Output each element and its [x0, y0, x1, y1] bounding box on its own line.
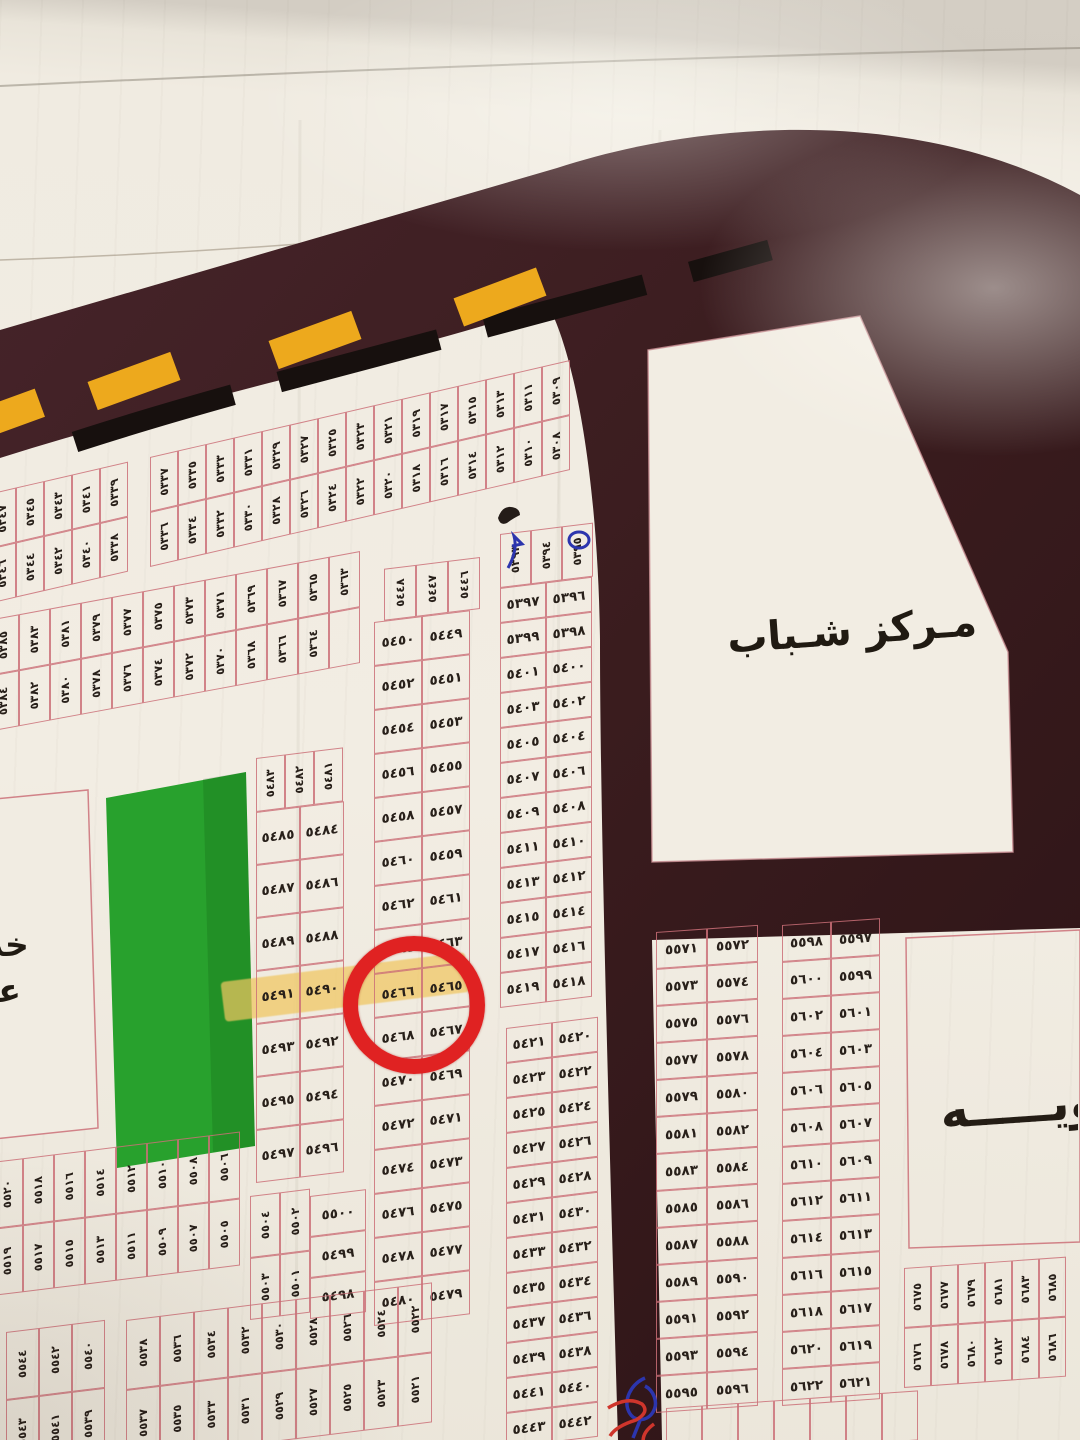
- blue-pen-mark-bottom: [627, 1378, 655, 1438]
- red-pen-mark-bottom: [608, 1401, 654, 1440]
- map-photo: ٥٣٤٧٥٣٤٦٥٣٤٥٥٣٤٤٥٣٤٣٥٣٤٢٥٣٤١٥٣٤٠٥٣٣٩٥٣٣٨…: [0, 0, 1080, 1440]
- blue-pen-circle: [569, 532, 589, 548]
- blue-pen-scribble: [508, 536, 522, 568]
- pen-marks: [0, 0, 1080, 1440]
